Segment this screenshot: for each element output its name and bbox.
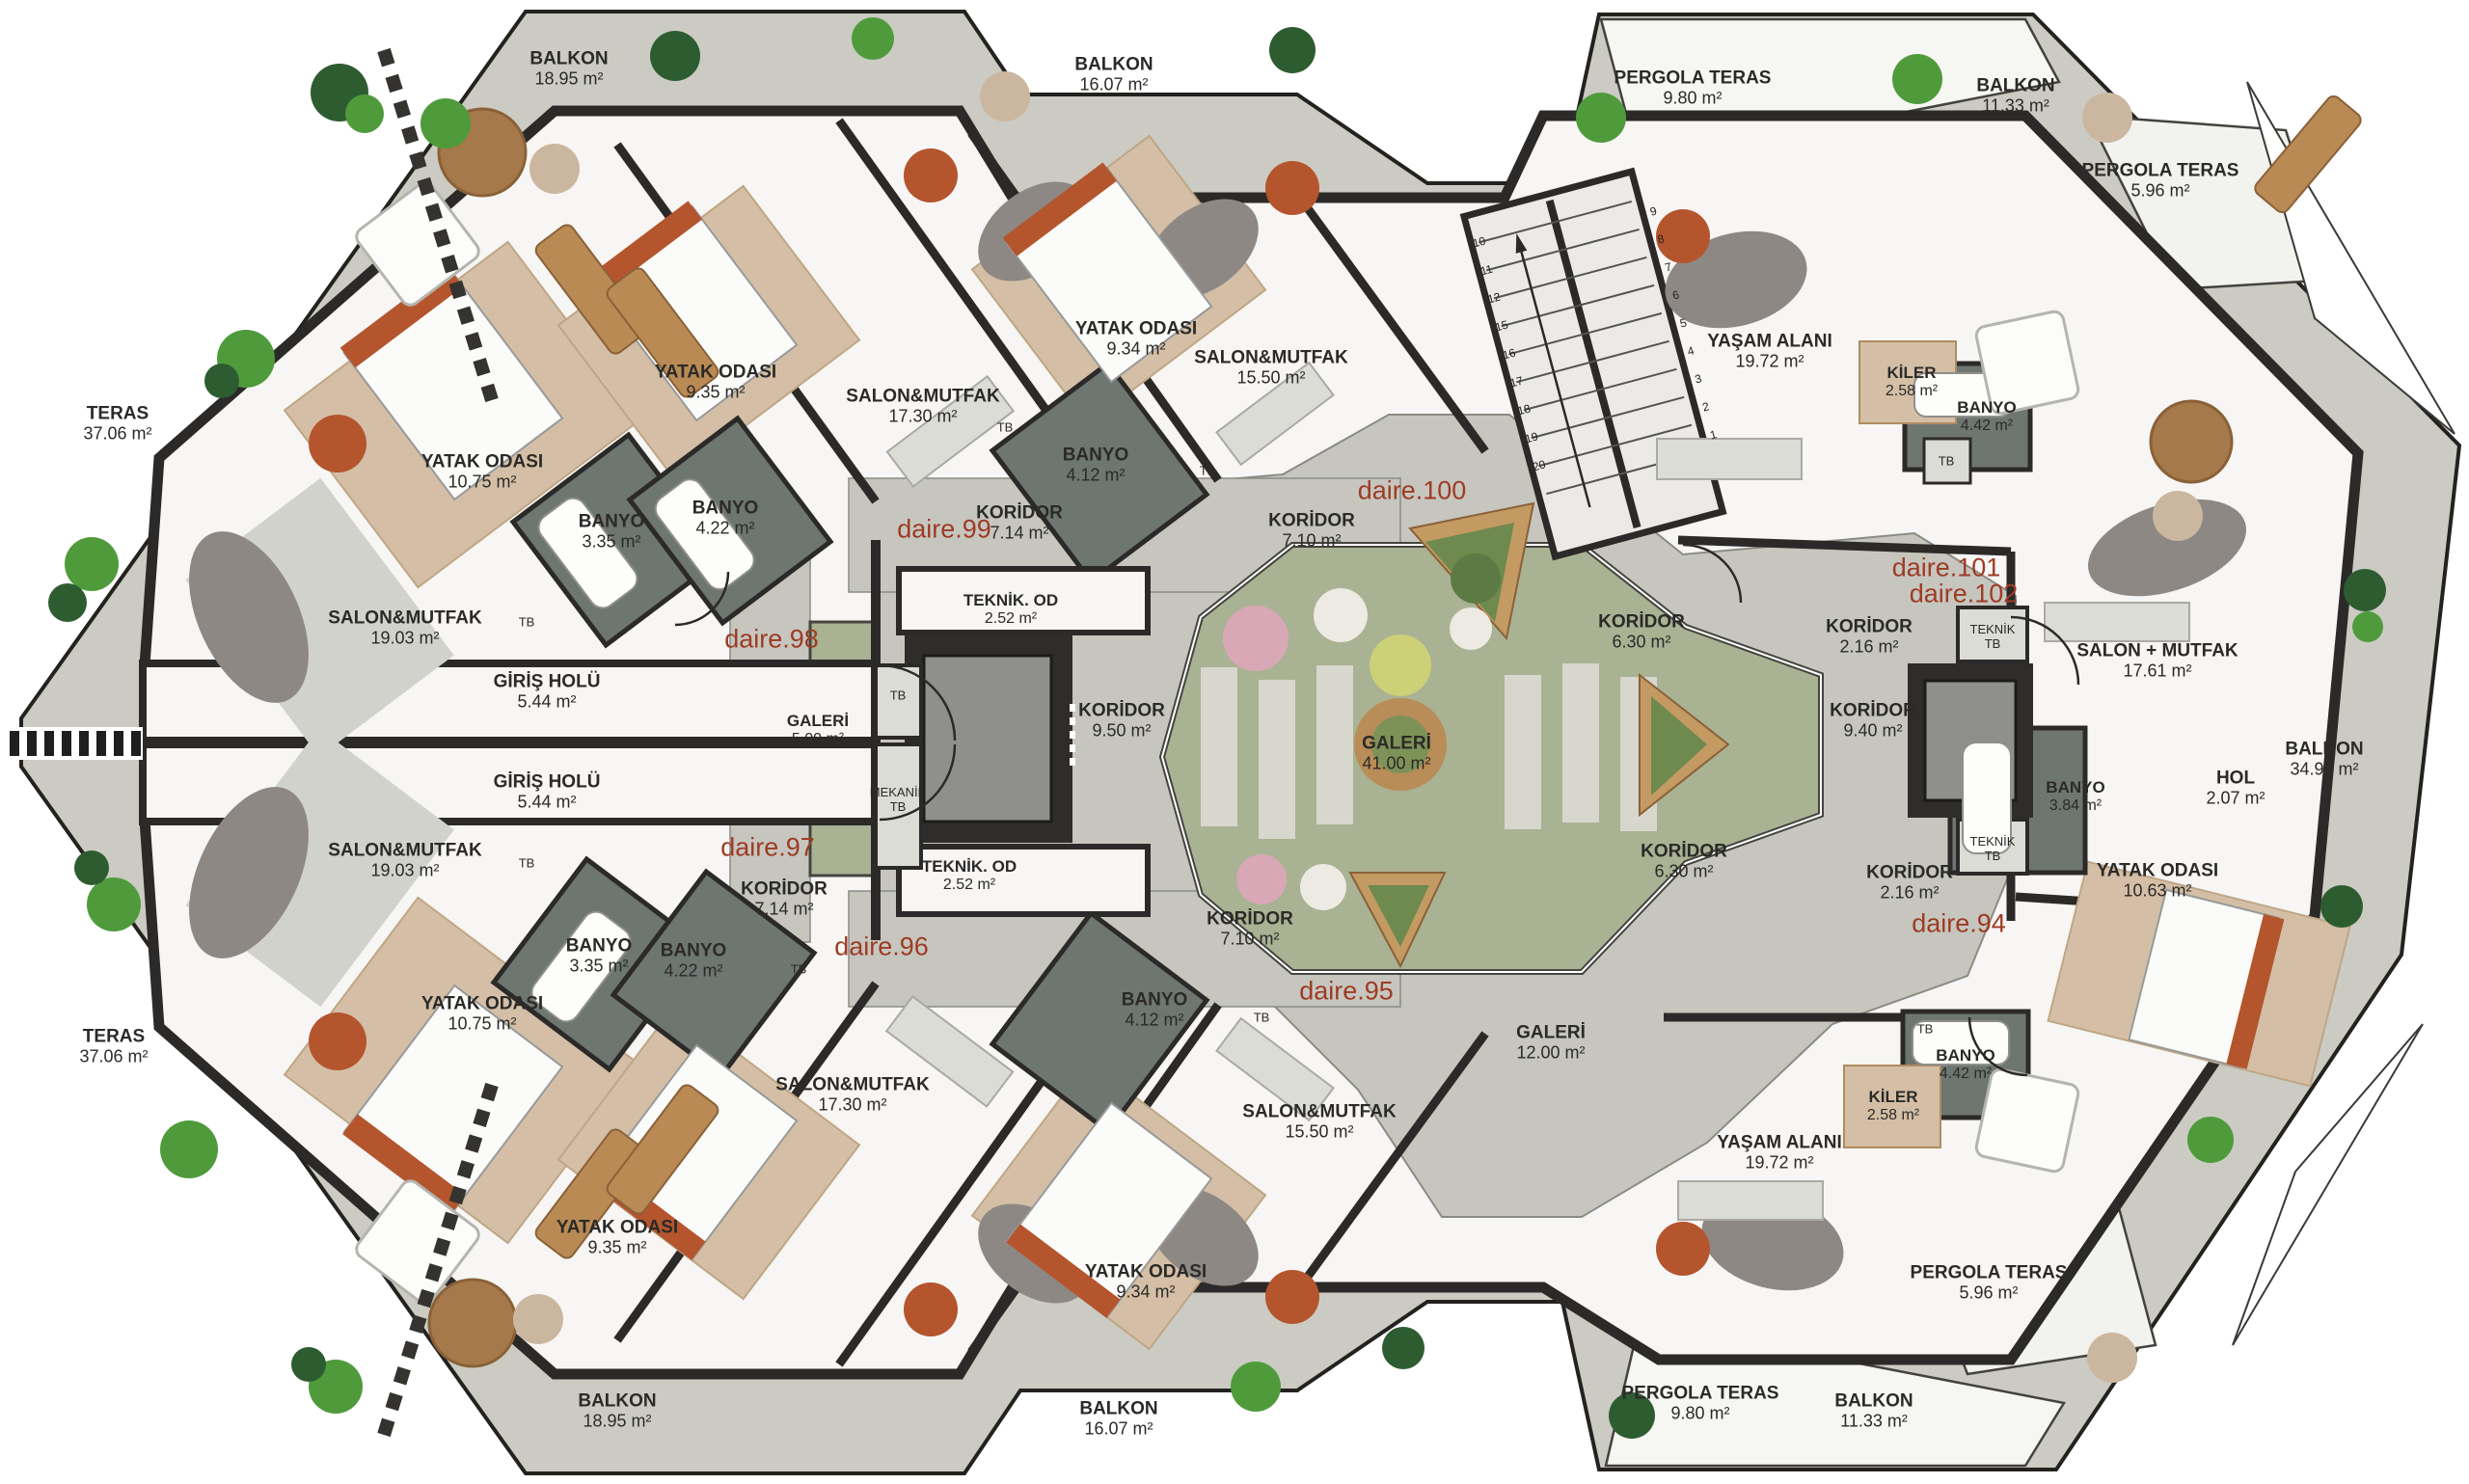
- room-label-koridor-216-top: KORİDOR2.16 m²: [1826, 618, 1913, 658]
- room-area: 9.35 m²: [655, 384, 776, 403]
- room-area: 11.33 m²: [1834, 1413, 1913, 1432]
- room-area: 9.80 m²: [1622, 1405, 1779, 1424]
- room-area: 19.72 m²: [1707, 353, 1832, 372]
- stair-numbers-left: 10 11 12 15 16 17 18 19 20: [1469, 227, 1549, 481]
- shaft-label-tb: TB: [1254, 1012, 1270, 1026]
- room-name: TEKNİK. OD: [963, 591, 1058, 609]
- stair-number: 15: [1492, 310, 1512, 341]
- room-name: KORİDOR: [1641, 842, 1727, 862]
- room-name: PERGOLA TERAS: [2082, 161, 2239, 181]
- room-name: YATAK ODASI: [421, 452, 543, 472]
- room-name: BALKON: [1976, 76, 2054, 96]
- room-area: 3.35 m²: [566, 958, 633, 977]
- room-name: YATAK ODASI: [1075, 319, 1197, 339]
- room-area: 16.07 m²: [1074, 76, 1153, 95]
- room-area: 2.16 m²: [1826, 638, 1913, 658]
- room-label-salon-1903-bottom: SALON&MUTFAK19.03 m²: [328, 842, 481, 881]
- room-label-balkon-bottom-center: BALKON16.07 m²: [1079, 1400, 1157, 1440]
- room-area: 2.52 m²: [922, 877, 1017, 894]
- shaft-label-mekanik-tb: MEKANİK TB: [866, 786, 930, 815]
- stair-number: 10: [1469, 227, 1489, 257]
- unit-label-daire-94: daire.94: [1912, 909, 2006, 939]
- room-area: 4.42 m²: [1957, 418, 2016, 435]
- unit-label-daire-95: daire.95: [1299, 977, 1394, 1007]
- room-label-banyo-335-bottom: BANYO3.35 m²: [566, 937, 633, 977]
- room-name: BALKON: [578, 1391, 656, 1412]
- room-area: 9.40 m²: [1830, 722, 1916, 742]
- room-label-pergola-bottom: PERGOLA TERAS9.80 m²: [1622, 1385, 1779, 1424]
- unit-label-daire-99: daire.99: [897, 515, 991, 545]
- room-name: BANYO: [2046, 778, 2104, 796]
- room-name: GİRİŞ HOLÜ: [494, 772, 601, 793]
- room-name: BANYO: [1936, 1046, 1994, 1065]
- room-label-koridor-216-bottom: KORİDOR2.16 m²: [1866, 864, 1953, 904]
- room-label-hol-207: HOL2.07 m²: [2206, 769, 2265, 809]
- room-area: 4.12 m²: [1063, 467, 1129, 486]
- room-name: KORİDOR: [1207, 909, 1293, 930]
- room-label-balkon-3492: BALKON34.92 m²: [2285, 741, 2363, 780]
- room-label-giris-holu-1: GİRİŞ HOLÜ5.44 m²: [494, 673, 601, 713]
- room-label-galeri-5: GALERİ5.00 m²: [787, 713, 849, 747]
- room-area: 4.42 m²: [1936, 1066, 1994, 1083]
- room-name: BANYO: [579, 512, 645, 532]
- room-label-koridor-710-bottom: KORİDOR7.10 m²: [1207, 910, 1293, 950]
- room-label-yatak-1075-bottom: YATAK ODASI10.75 m²: [421, 995, 543, 1035]
- room-area: 9.34 m²: [1085, 1283, 1207, 1303]
- room-name: YATAK ODASI: [556, 1218, 678, 1238]
- room-name: KORİDOR: [1866, 863, 1953, 883]
- room-label-salon-1550-top: SALON&MUTFAK15.50 m²: [1194, 349, 1347, 389]
- room-area: 2.07 m²: [2206, 790, 2265, 809]
- room-label-salon-mutfak-1761: SALON + MUTFAK17.61 m²: [2076, 642, 2238, 682]
- room-label-koridor-950: KORİDOR9.50 m²: [1078, 702, 1165, 742]
- room-label-banyo-412-bottom: BANYO4.12 m²: [1122, 991, 1188, 1031]
- shaft-label-tb: TB: [519, 857, 535, 872]
- shaft-label-teknik-tb-bottom: TEKNİK TB: [1961, 835, 2024, 864]
- room-name: TEKNİK. OD: [922, 857, 1017, 876]
- room-label-giris-holu-2: GİRİŞ HOLÜ5.44 m²: [494, 773, 601, 813]
- room-area: 9.50 m²: [1078, 722, 1165, 742]
- room-area: 11.33 m²: [1976, 97, 2054, 117]
- room-area: 5.44 m²: [494, 693, 601, 713]
- room-area: 7.10 m²: [1207, 931, 1293, 950]
- room-area: 10.75 m²: [421, 473, 543, 493]
- room-area: 5.96 m²: [2082, 182, 2239, 202]
- room-name: BANYO: [661, 941, 727, 961]
- room-label-yatak-1075-top: YATAK ODASI10.75 m²: [421, 453, 543, 493]
- room-label-banyo-442-bottom: BANYO4.42 m²: [1936, 1047, 1994, 1082]
- shaft-label-teknik-tb-top: TEKNİK TB: [1961, 623, 2024, 652]
- stair-number: 1: [1706, 420, 1720, 450]
- room-label-banyo-335-top: BANYO3.35 m²: [579, 513, 645, 553]
- room-label-banyo-384: BANYO3.84 m²: [2046, 779, 2104, 814]
- room-area: 9.80 m²: [1614, 90, 1772, 109]
- room-area: 19.72 m²: [1717, 1154, 1842, 1174]
- room-name: BANYO: [1063, 445, 1129, 466]
- room-name: SALON&MUTFAK: [1194, 348, 1347, 368]
- room-label-galeri-41: GALERİ41.00 m²: [1362, 735, 1431, 774]
- room-label-balkon-bottom-right: BALKON11.33 m²: [1834, 1392, 1913, 1432]
- unit-label-daire-100: daire.100: [1358, 476, 1467, 506]
- room-label-teknik-od-bottom: TEKNİK. OD2.52 m²: [922, 858, 1017, 893]
- room-label-yatak-934-bottom: YATAK ODASI9.34 m²: [1085, 1263, 1207, 1303]
- room-name: SALON&MUTFAK: [1242, 1102, 1396, 1122]
- stair-number: 9: [1646, 197, 1660, 227]
- stair-number: 16: [1499, 338, 1519, 369]
- room-area: 9.35 m²: [556, 1239, 678, 1258]
- room-area: 6.30 m²: [1641, 863, 1727, 882]
- room-area: 15.50 m²: [1242, 1123, 1396, 1143]
- room-label-koridor-940: KORİDOR9.40 m²: [1830, 702, 1916, 742]
- shaft-label-tb: TB: [791, 963, 807, 978]
- room-area: 5.96 m²: [1911, 1284, 2068, 1304]
- stair-number: 3: [1692, 364, 1705, 394]
- room-area: 4.22 m²: [661, 962, 727, 982]
- room-label-yatak-935-top: YATAK ODASI9.35 m²: [655, 364, 776, 403]
- room-label-pergola-right-bottom: PERGOLA TERAS5.96 m²: [1911, 1264, 2068, 1304]
- room-name: BALKON: [1074, 55, 1153, 75]
- stair-number: 20: [1529, 450, 1549, 481]
- room-label-yasam-alani-top: YAŞAM ALANI19.72 m²: [1707, 333, 1832, 372]
- room-area: 41.00 m²: [1362, 755, 1431, 774]
- room-label-salon-1730-bottom: SALON&MUTFAK17.30 m²: [775, 1076, 929, 1116]
- room-label-koridor-714-bottom: KORİDOR7.14 m²: [741, 880, 828, 920]
- room-name: SALON + MUTFAK: [2076, 641, 2238, 661]
- room-label-koridor-630-top: KORİDOR6.30 m²: [1598, 613, 1685, 653]
- room-area: 19.03 m²: [328, 630, 481, 649]
- room-area: 3.35 m²: [579, 533, 645, 553]
- room-label-yatak-1063: YATAK ODASI10.63 m²: [2097, 862, 2218, 902]
- stair-number: 17: [1506, 366, 1527, 397]
- room-label-pergola-top: PERGOLA TERAS9.80 m²: [1614, 69, 1772, 109]
- room-label-galeri-12: GALERİ12.00 m²: [1516, 1024, 1586, 1064]
- stair-number: 18: [1514, 394, 1534, 425]
- room-name: PERGOLA TERAS: [1622, 1384, 1779, 1404]
- room-name: TERAS: [87, 404, 149, 424]
- room-name: YATAK ODASI: [655, 363, 776, 383]
- room-area: 6.30 m²: [1598, 634, 1685, 653]
- stair-number: 12: [1484, 283, 1505, 313]
- room-name: YATAK ODASI: [1085, 1262, 1207, 1282]
- room-label-teknik-od-top: TEKNİK. OD2.52 m²: [963, 592, 1058, 627]
- room-name: SALON&MUTFAK: [775, 1075, 929, 1095]
- room-label-yasam-alani-bottom: YAŞAM ALANI19.72 m²: [1717, 1134, 1842, 1174]
- room-area: 2.58 m²: [1867, 1107, 1919, 1124]
- room-label-balkon-top-center: BALKON16.07 m²: [1074, 56, 1153, 95]
- room-area: 4.22 m²: [692, 520, 759, 539]
- stair-number: 2: [1699, 392, 1713, 422]
- unit-label-daire-102: daire.102: [1910, 580, 2019, 609]
- room-name: YATAK ODASI: [2097, 861, 2218, 881]
- room-area: 18.95 m²: [529, 70, 608, 90]
- room-area: 37.06 m²: [83, 425, 151, 445]
- room-name: BALKON: [2285, 740, 2363, 760]
- room-label-teras-top: TERAS37.06 m²: [83, 405, 151, 445]
- room-name: KORİDOR: [1830, 701, 1916, 721]
- room-name: SALON&MUTFAK: [328, 841, 481, 861]
- labels-layer: BALKON18.95 m² BALKON16.07 m² PERGOLA TE…: [0, 0, 2469, 1484]
- room-name: YAŞAM ALANI: [1707, 332, 1832, 352]
- stair-number: 11: [1477, 255, 1496, 285]
- room-label-salon-1730-top: SALON&MUTFAK17.30 m²: [846, 388, 999, 427]
- room-name: BANYO: [692, 499, 759, 519]
- room-label-yatak-934-top: YATAK ODASI9.34 m²: [1075, 320, 1197, 360]
- stair-number: 6: [1669, 281, 1682, 310]
- room-area: 34.92 m²: [2285, 761, 2363, 780]
- unit-label-daire-98: daire.98: [724, 625, 819, 655]
- room-label-banyo-422-bottom: BANYO4.22 m²: [661, 942, 727, 982]
- room-name: KORİDOR: [1826, 617, 1913, 637]
- room-name: GALERİ: [1362, 734, 1431, 754]
- room-area: 18.95 m²: [578, 1413, 656, 1432]
- room-label-balkon-top-left: BALKON18.95 m²: [529, 50, 608, 90]
- room-label-koridor-710-top: KORİDOR7.10 m²: [1268, 512, 1355, 552]
- room-name: PERGOLA TERAS: [1911, 1263, 2068, 1283]
- stair-number: 5: [1676, 309, 1690, 338]
- room-name: BANYO: [566, 936, 633, 957]
- room-name: YAŞAM ALANI: [1717, 1133, 1842, 1153]
- room-area: 16.07 m²: [1079, 1420, 1157, 1440]
- stair-number: 19: [1522, 422, 1542, 453]
- stair-numbers-right: 9 8 7 6 5 4 3 2 1: [1646, 197, 1720, 450]
- room-label-pergola-right-top: PERGOLA TERAS5.96 m²: [2082, 162, 2239, 202]
- room-name: KORİDOR: [741, 879, 828, 900]
- stair-number: 8: [1654, 225, 1668, 255]
- room-area: 4.12 m²: [1122, 1012, 1188, 1031]
- room-label-koridor-630-bottom: KORİDOR6.30 m²: [1641, 843, 1727, 882]
- room-label-banyo-412-top: BANYO4.12 m²: [1063, 446, 1129, 486]
- room-area: 12.00 m²: [1516, 1044, 1586, 1064]
- shaft-label-tb: TB: [997, 421, 1014, 436]
- room-name: KİLER: [1887, 364, 1937, 382]
- room-name: BANYO: [1122, 990, 1188, 1011]
- room-label-salon-1550-bottom: SALON&MUTFAK15.50 m²: [1242, 1103, 1396, 1143]
- room-name: SALON&MUTFAK: [328, 608, 481, 629]
- room-name: KORİDOR: [1598, 612, 1685, 633]
- room-label-banyo-422-top: BANYO4.22 m²: [692, 499, 759, 539]
- shaft-label-tb: TB: [1200, 465, 1216, 479]
- room-label-balkon-top-right: BALKON11.33 m²: [1976, 77, 2054, 117]
- unit-label-daire-96: daire.96: [834, 932, 929, 962]
- room-area: 17.61 m²: [2076, 662, 2238, 682]
- room-name: TERAS: [83, 1027, 145, 1047]
- room-area: 10.75 m²: [421, 1015, 543, 1035]
- room-name: SALON&MUTFAK: [846, 387, 999, 407]
- room-name: KORİDOR: [1268, 511, 1355, 531]
- room-area: 2.58 m²: [1886, 383, 1938, 400]
- room-label-banyo-442-top: BANYO4.42 m²: [1957, 399, 2016, 434]
- room-area: 19.03 m²: [328, 862, 481, 881]
- room-area: 17.30 m²: [846, 408, 999, 427]
- room-label-kiler-bottom: KİLER2.58 m²: [1867, 1089, 1919, 1123]
- room-area: 5.44 m²: [494, 794, 601, 813]
- room-label-balkon-bottom-left: BALKON18.95 m²: [578, 1392, 656, 1432]
- room-name: BANYO: [1957, 398, 2016, 417]
- room-name: PERGOLA TERAS: [1614, 68, 1772, 89]
- room-area: 7.10 m²: [1268, 532, 1355, 552]
- room-name: BALKON: [1079, 1399, 1157, 1419]
- room-area: 17.30 m²: [775, 1096, 929, 1116]
- room-area: 2.16 m²: [1866, 884, 1953, 904]
- room-name: GALERİ: [1516, 1023, 1586, 1043]
- room-area: 10.63 m²: [2097, 882, 2218, 902]
- stair-number: 7: [1662, 253, 1675, 283]
- room-label-yatak-935-bottom: YATAK ODASI9.35 m²: [556, 1219, 678, 1258]
- room-area: 5.00 m²: [787, 731, 849, 748]
- shaft-label-tb: TB: [519, 616, 535, 631]
- room-area: 7.14 m²: [741, 901, 828, 920]
- room-name: YATAK ODASI: [421, 994, 543, 1014]
- room-area: 3.84 m²: [2046, 797, 2104, 815]
- room-area: 15.50 m²: [1194, 369, 1347, 389]
- room-name: HOL: [2216, 769, 2255, 789]
- room-area: 2.52 m²: [963, 610, 1058, 628]
- room-label-salon-1903-top: SALON&MUTFAK19.03 m²: [328, 609, 481, 649]
- unit-label-daire-97: daire.97: [720, 833, 815, 863]
- room-area: 37.06 m²: [79, 1048, 148, 1067]
- room-label-kiler-top: KİLER2.58 m²: [1886, 364, 1938, 399]
- room-name: BALKON: [529, 49, 608, 69]
- room-area: 9.34 m²: [1075, 340, 1197, 360]
- shaft-label-tb: TB: [1939, 455, 1955, 470]
- floor-plan: BALKON18.95 m² BALKON16.07 m² PERGOLA TE…: [0, 0, 2469, 1484]
- room-name: BALKON: [1834, 1391, 1913, 1412]
- room-name: GİRİŞ HOLÜ: [494, 672, 601, 692]
- room-name: KİLER: [1869, 1088, 1918, 1106]
- shaft-label-tb: TB: [1917, 1023, 1934, 1038]
- room-name: KORİDOR: [1078, 701, 1165, 721]
- stair-number: 4: [1684, 337, 1697, 366]
- room-name: GALERİ: [787, 712, 849, 730]
- shaft-label-tb: TB: [890, 689, 907, 704]
- room-label-teras-bottom: TERAS37.06 m²: [79, 1028, 148, 1067]
